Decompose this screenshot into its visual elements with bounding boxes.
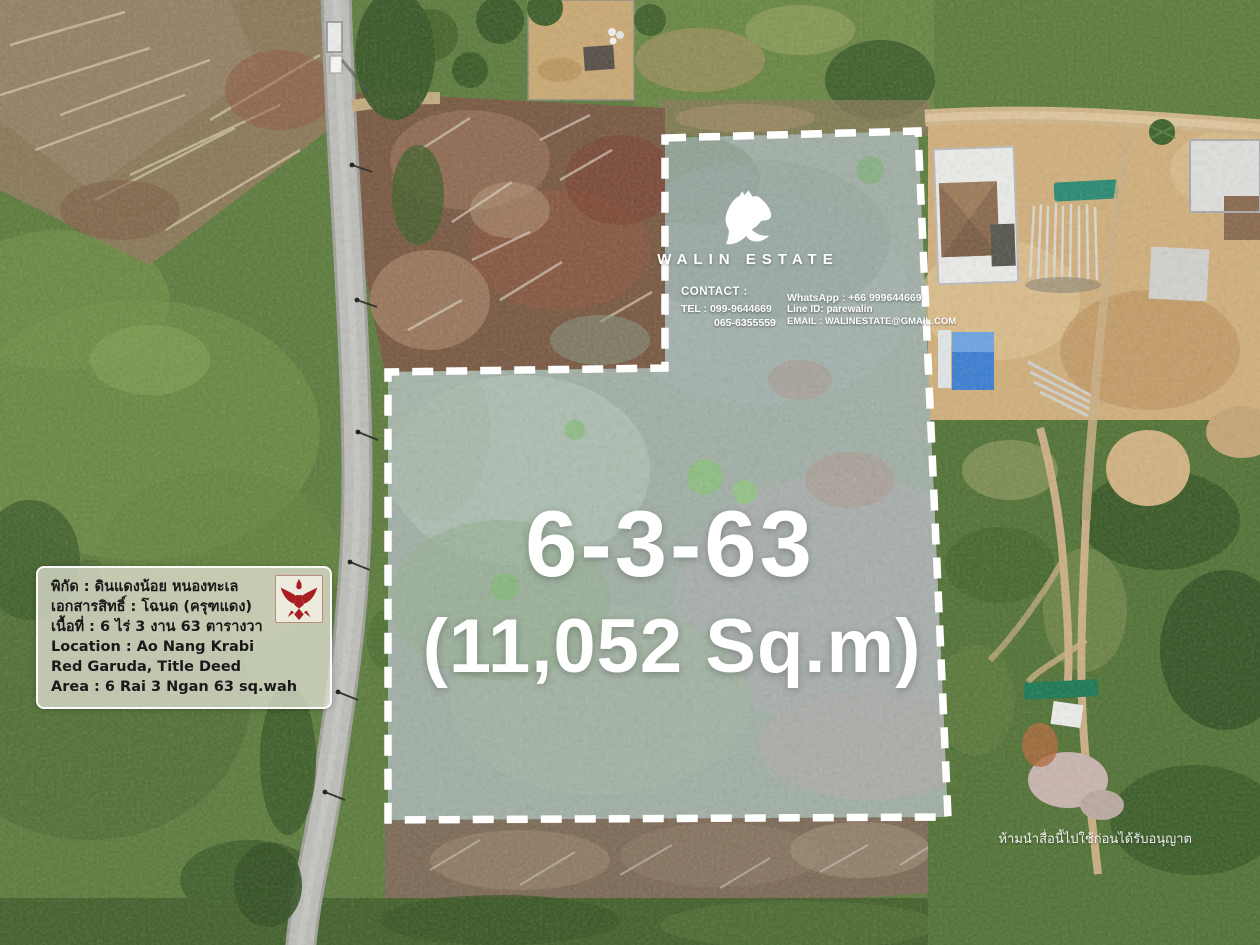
contact-email: EMAIL : WALINESTATE@GMAIL.COM [787, 316, 956, 327]
plot-area-sqm: (11,052 Sq.m) [352, 609, 992, 685]
plot-area-code: 6-3-63 [400, 497, 940, 591]
contact-label: CONTACT : [681, 286, 748, 298]
info-line-area-en: Area : 6 Rai 3 Ngan 63 sq.wah [51, 677, 317, 697]
contact-tel-2: 065-6355559 [714, 317, 776, 329]
brand-name: WALIN ESTATE [618, 251, 878, 268]
info-line-location-en: Location : Ao Nang Krabi [51, 637, 317, 657]
watermark-text: ห้ามนำสื่อนี้ไปใช้ก่อนได้รับอนุญาต [998, 828, 1192, 849]
scene-background [0, 0, 1260, 945]
contact-line-id: Line ID: parewalin [787, 304, 873, 315]
info-line-deed-en: Red Garuda, Title Deed [51, 657, 317, 677]
contact-whatsapp: WhatsApp : +66 999644669 [787, 292, 922, 304]
horse-head-icon [704, 188, 790, 252]
grain-overlay-dark [0, 0, 1260, 945]
land-info-box: พิกัด : ดินแดงน้อย หนองทะเล เอกสารสิทธิ์… [36, 566, 332, 709]
red-garuda-emblem [275, 575, 323, 623]
aerial-photo: WALIN ESTATE CONTACT : TEL : 099-9644669… [0, 0, 1260, 945]
contact-tel-1: TEL : 099-9644669 [681, 303, 772, 315]
